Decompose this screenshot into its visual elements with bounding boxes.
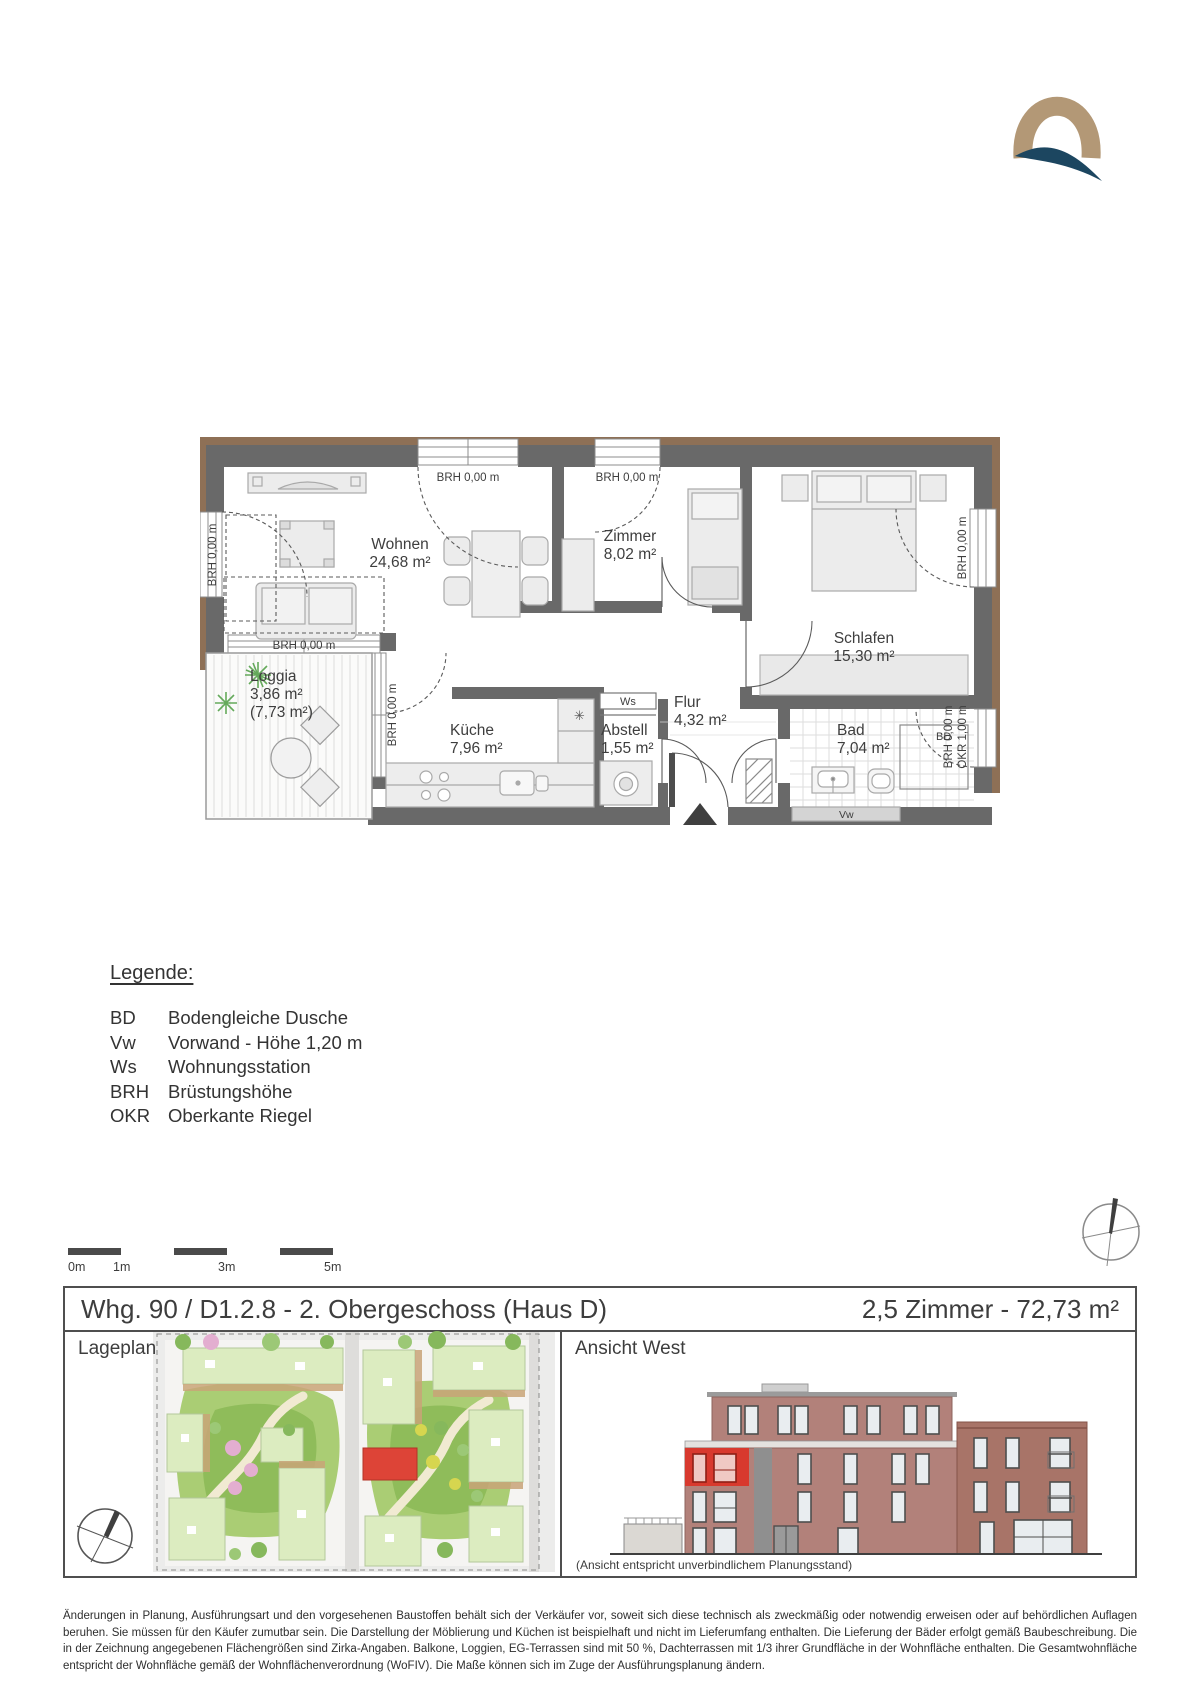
entrance-door-leaf: [669, 753, 675, 807]
scale-bar: 0m 1m 3m 5m: [68, 1248, 348, 1278]
label-zimmer: Zimmer: [604, 528, 657, 545]
fridge-icon: ✳: [574, 708, 585, 723]
ws-label: Ws: [620, 696, 636, 708]
floorplan-sheet: { "logo": {"name": "q-logo"}, "plan": { …: [0, 0, 1200, 1698]
label-abstell: Abstell: [601, 722, 648, 739]
legend-row: OKROberkante Riegel: [110, 1105, 362, 1130]
label-loggia: Loggia: [250, 668, 297, 685]
label-abstell-area: 1,55 m²: [601, 740, 654, 757]
brh-schlafen-window: BRH 0,00 m: [957, 517, 969, 580]
footer-disclaimer: Änderungen in Planung, Ausführungsart un…: [63, 1608, 1137, 1674]
compass-icon: [1080, 1190, 1144, 1270]
label-loggia-area: 3,86 m²: [250, 686, 303, 703]
elevation-title: Ansicht West: [575, 1338, 686, 1360]
legend-row: BRHBrüstungshöhe: [110, 1081, 362, 1106]
elevation-drawing: [562, 1330, 1135, 1574]
brh-loggia-window: BRH 0,00 m: [273, 640, 336, 652]
q-logo: [1002, 55, 1112, 195]
brh-kitchen-door: BRH 0,00 m: [387, 684, 399, 747]
vw-label: Vw: [839, 809, 854, 821]
elevation-caption: (Ansicht entspricht unverbindlichem Plan…: [576, 1558, 852, 1572]
label-schlafen: Schlafen: [834, 630, 894, 647]
label-wohnen: Wohnen: [371, 536, 428, 553]
legend: Legende: BDBodengleiche Dusche VwVorwand…: [110, 962, 362, 1130]
label-schlafen-area: 15,30 m²: [833, 648, 894, 665]
bd-label: BD: [936, 731, 951, 743]
brh-left-window: BRH 0,00 m: [207, 524, 219, 587]
brh-top-window-1: BRH 0,00 m: [437, 472, 500, 484]
label-kueche-area: 7,96 m²: [450, 740, 503, 757]
label-bad-area: 7,04 m²: [837, 740, 890, 757]
legend-row: BDBodengleiche Dusche: [110, 1007, 362, 1032]
label-wohnen-area: 24,68 m²: [369, 554, 430, 571]
label-flur-area: 4,32 m²: [674, 712, 727, 729]
scale-tick-3m: 3m: [218, 1260, 235, 1274]
label-loggia-area-half: (7,73 m²): [250, 704, 313, 721]
scale-tick-1m: 1m: [113, 1260, 130, 1274]
brh-top-window-2: BRH 0,00 m: [596, 472, 659, 484]
siteplan-title: Lageplan: [78, 1338, 156, 1360]
title-bar: Whg. 90 / D1.2.8 - 2. Obergeschoss (Haus…: [63, 1286, 1137, 1332]
apartment-title: Whg. 90 / D1.2.8 - 2. Obergeschoss (Haus…: [81, 1294, 607, 1325]
entrance-marker: [683, 803, 717, 825]
scale-tick-5m: 5m: [324, 1260, 341, 1274]
scale-tick-0m: 0m: [68, 1260, 85, 1274]
label-kueche: Küche: [450, 722, 494, 739]
legend-row: WsWohnungsstation: [110, 1056, 362, 1081]
label-bad: Bad: [837, 722, 865, 739]
siteplan-panel: Lageplan: [65, 1330, 562, 1576]
elevation-panel: Ansicht West (Ansicht entspricht unverbi…: [562, 1330, 1135, 1576]
panels: Lageplan: [63, 1330, 1137, 1578]
floor-plan: Wohnen 24,68 m² Zimmer 8,02 m² Schlafen …: [200, 437, 1000, 825]
siteplan-drawing: [65, 1330, 562, 1574]
legend-title: Legende:: [110, 962, 362, 985]
label-flur: Flur: [674, 694, 701, 711]
apartment-size: 2,5 Zimmer - 72,73 m²: [862, 1294, 1119, 1325]
elevation-highlight: [685, 1448, 749, 1486]
label-zimmer-area: 8,02 m²: [604, 546, 657, 563]
legend-row: VwVorwand - Höhe 1,20 m: [110, 1032, 362, 1057]
siteplan-compass-icon: [77, 1509, 133, 1563]
okr-bad-window: OKR 1,00 m: [957, 705, 969, 768]
siteplan-highlight: [363, 1448, 417, 1480]
